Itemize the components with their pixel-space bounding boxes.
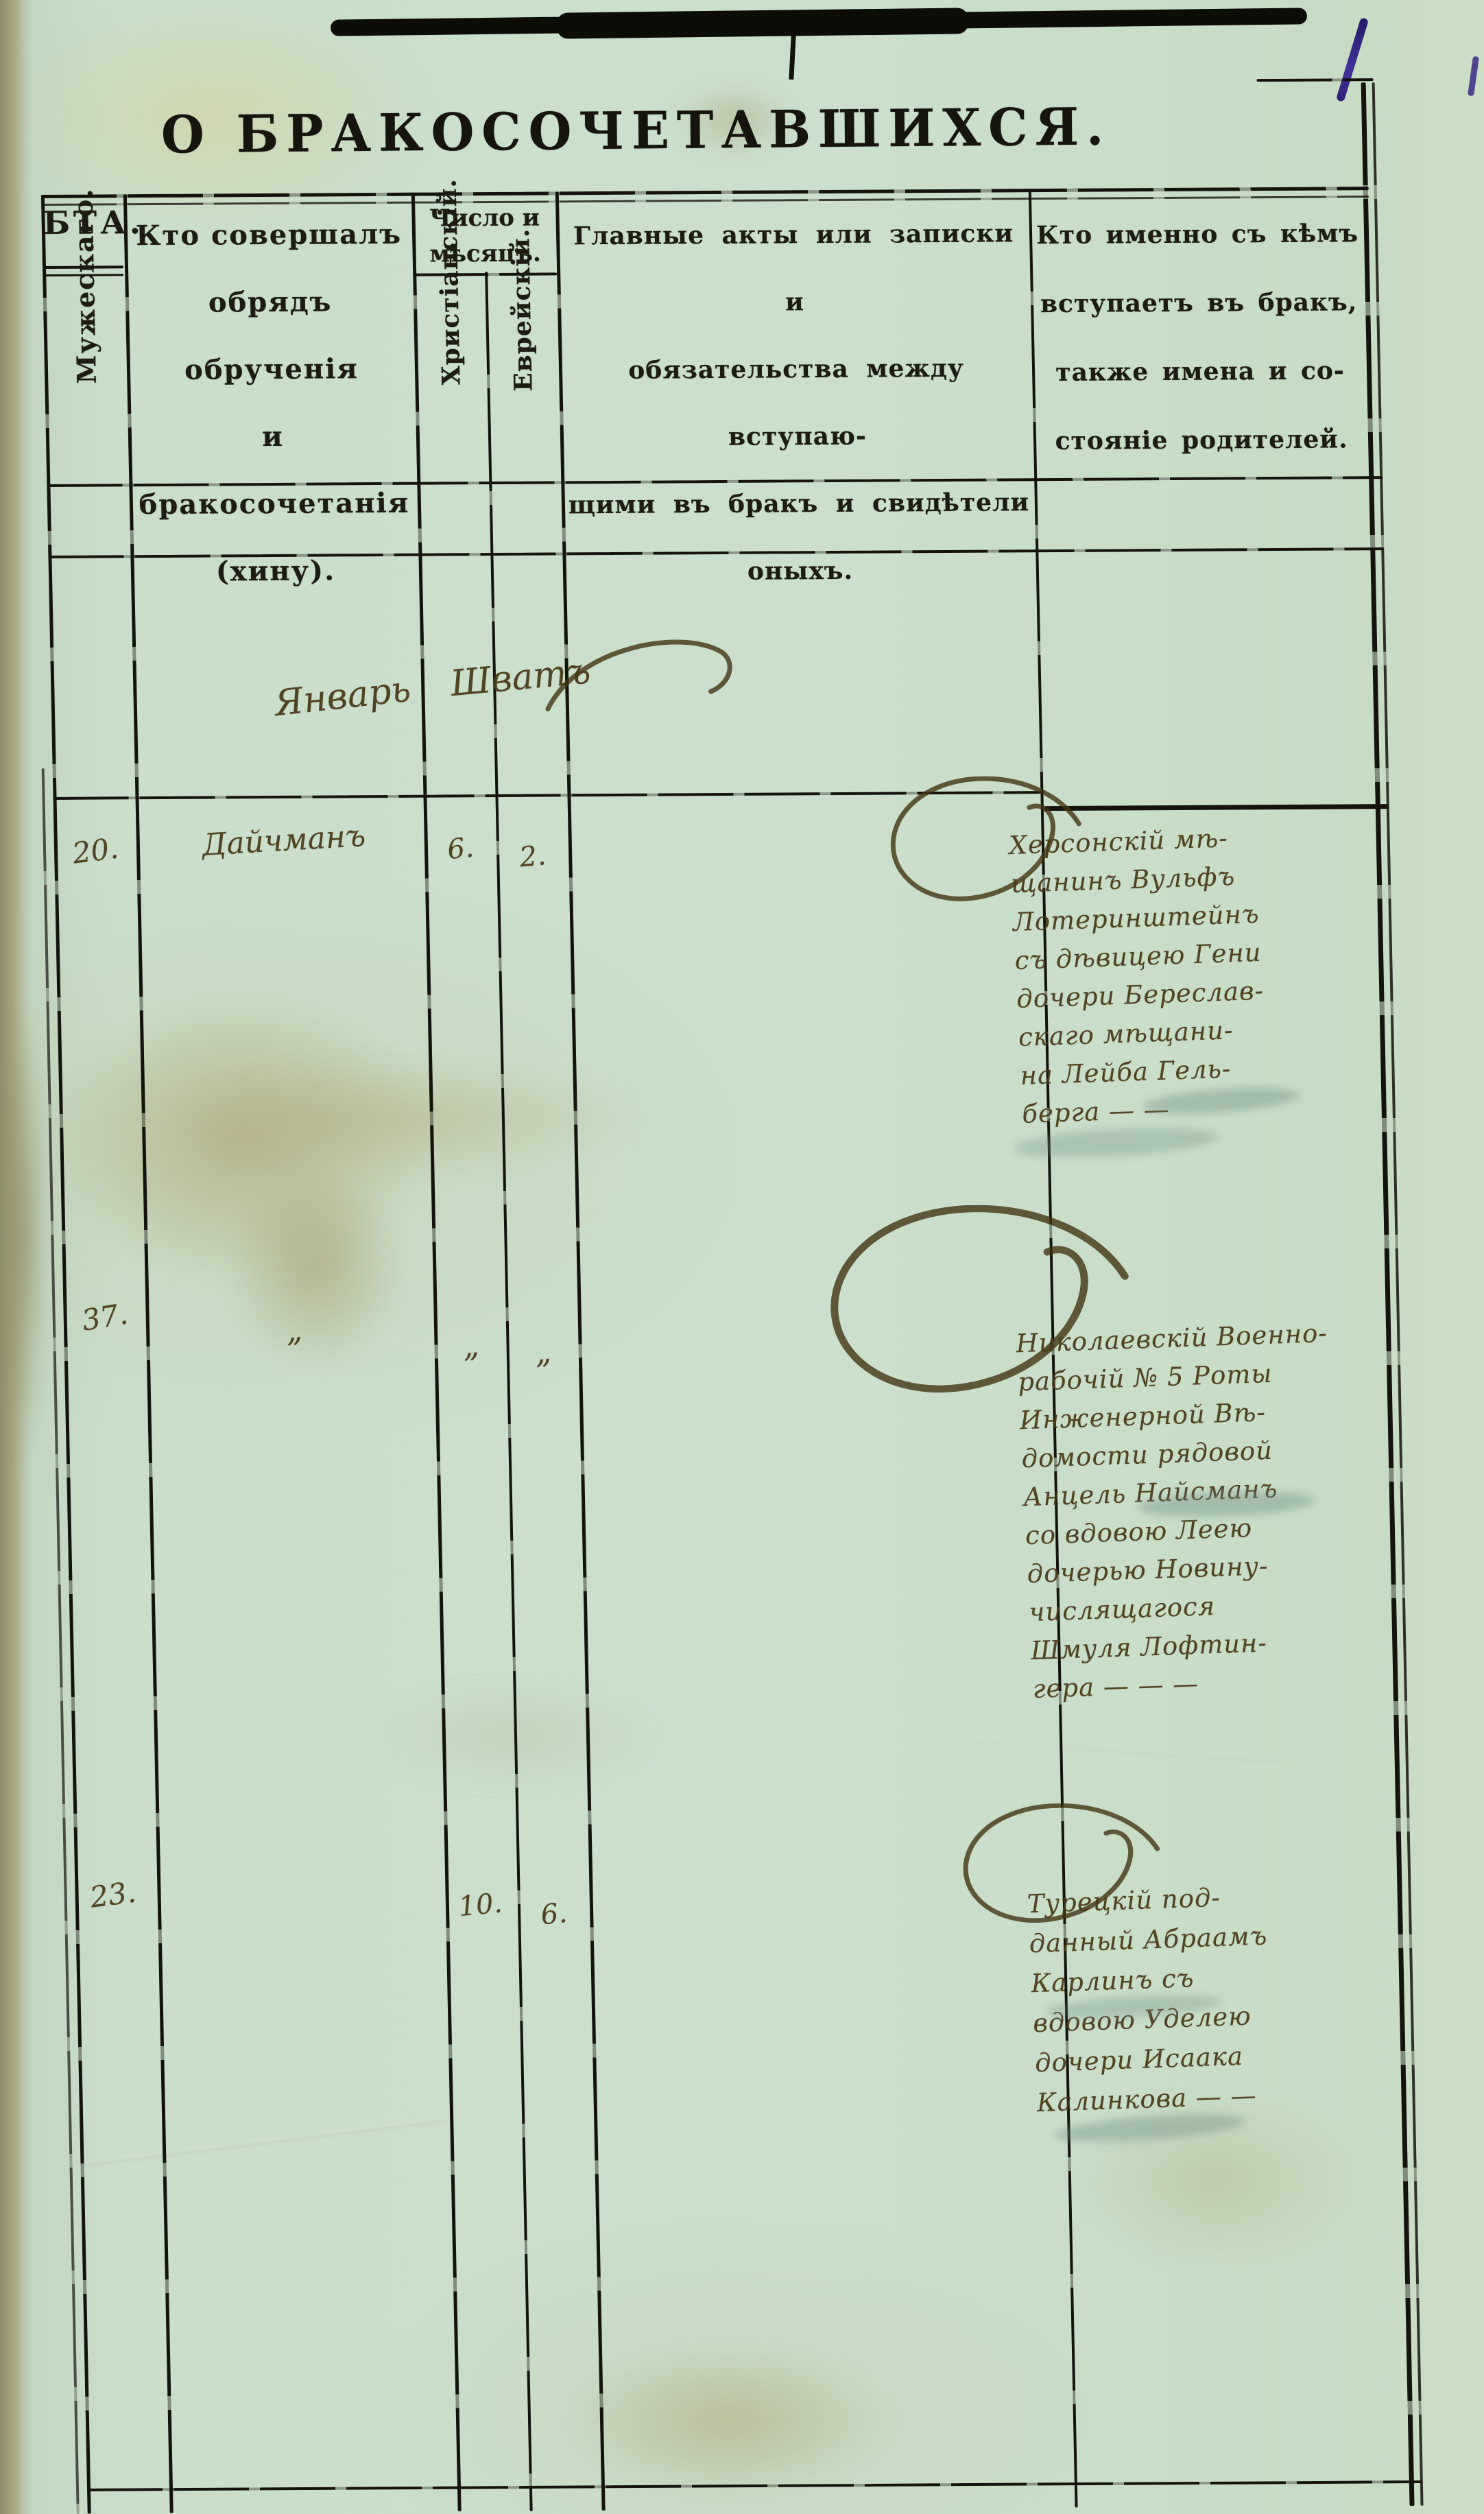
row-names-entry: Турецкій под- данный Абраамъ Карлинъ съ … — [1027, 1871, 1422, 2123]
header-line: и бракосочетанія — [131, 403, 416, 539]
row-number: 23. — [70, 1873, 156, 1917]
rule — [1372, 82, 1424, 2506]
row-christian-date: 6. — [423, 830, 498, 868]
row-number: 20. — [52, 829, 139, 873]
column-header-officiant: Кто совершалъ обрядъ обрученія и бракосо… — [127, 201, 418, 606]
header-line: Кто совершалъ — [127, 201, 411, 270]
row-officiant: „ — [155, 1298, 432, 1361]
rule — [485, 272, 533, 2511]
header-line: оныхъ. — [566, 536, 1035, 606]
header-line: (хину). — [134, 537, 418, 606]
header-line: также имена и со- — [1035, 336, 1365, 407]
row-christian-date: 10. — [443, 1886, 518, 1925]
handwriting-flourish — [537, 627, 738, 724]
row-jewish-date: „ — [505, 1330, 580, 1374]
rule — [87, 2480, 1422, 2491]
rule — [1044, 804, 1388, 811]
header-line: стояніе родителей. — [1036, 405, 1367, 475]
row-jewish-date: 6. — [516, 1895, 591, 1934]
scanned-register-page: О БРАКОСОЧЕТАВШИХСЯ. БТА. Мужескаго. Кто… — [0, 0, 1484, 2514]
row-officiant: Дайчманъ — [145, 815, 422, 866]
header-line: Главные акты или записки и — [559, 200, 1029, 337]
header-line: щими въ бракъ и свидѣтели — [564, 469, 1033, 538]
rule — [1361, 82, 1415, 2506]
row-names-entry: Херсонскій мѣ- щанинъ Вульфъ Лотеринштей… — [1008, 814, 1393, 1134]
column-header-who: Кто именно съ кѣмъ вступаетъ въ бракъ, т… — [1032, 199, 1367, 475]
column-header-acts: Главные акты или записки и обязательства… — [559, 200, 1035, 606]
header-line: вступаетъ въ бракъ, — [1033, 268, 1364, 338]
row-christian-date: „ — [433, 1324, 508, 1368]
header-line: обязательства между вступаю- — [562, 334, 1032, 471]
row-jewish-date: 2. — [495, 838, 570, 876]
row-number: 37. — [61, 1294, 148, 1340]
rule — [1257, 78, 1374, 82]
marriage-register-table: БТА. Мужескаго. Кто совершалъ обрядъ обр… — [0, 0, 1484, 2514]
month-note-christian: Январь — [245, 665, 440, 728]
header-line: Кто именно съ кѣмъ — [1032, 199, 1363, 270]
header-line: обрядъ обрученія — [128, 268, 414, 405]
rule — [41, 195, 91, 2514]
